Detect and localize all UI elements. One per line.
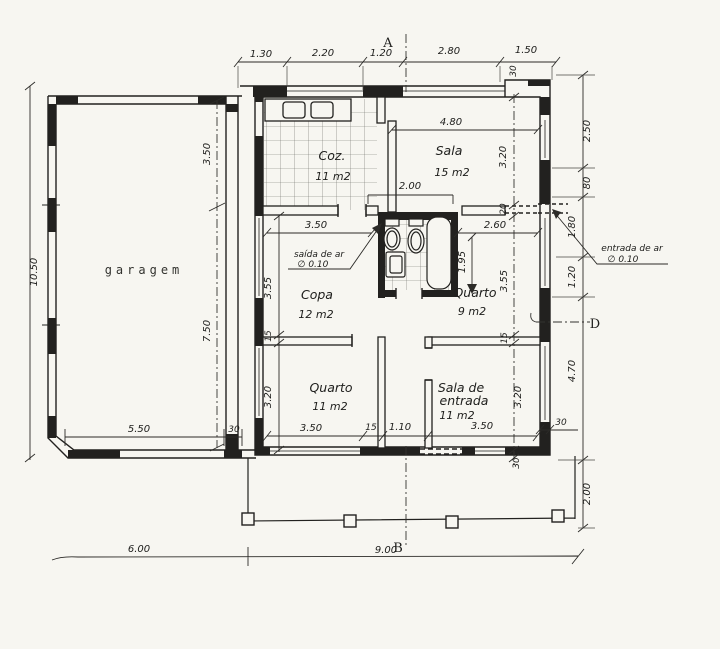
dim-right-1: 2.50 bbox=[582, 120, 593, 142]
room-area-kitchen: 11 m2 bbox=[315, 170, 350, 183]
dim-right-wall: 30 bbox=[555, 418, 567, 428]
kitchen-sink-right bbox=[311, 102, 333, 118]
dim-right-inner-6: 30 bbox=[512, 457, 522, 469]
dim-top-5: 1.50 bbox=[515, 45, 537, 56]
tiled-floors bbox=[264, 99, 451, 290]
dim-right-4: 1.20 bbox=[567, 266, 578, 288]
kitchen-sink-left bbox=[283, 102, 305, 118]
air-inlet-size: ∅ 0.10 bbox=[608, 255, 639, 265]
dim-left-inner-2: 15 bbox=[264, 330, 274, 342]
room-area-entry: 11 m2 bbox=[439, 409, 474, 422]
dim-left-inner-1: 3.55 bbox=[263, 277, 274, 299]
dining-top-wall-jamb bbox=[366, 206, 378, 215]
floor-plan-canvas: garagem Coz. 11 m2 Sala 15 m2 Copa 12 m2… bbox=[0, 0, 720, 649]
dim-garage-w: 5.50 bbox=[128, 424, 150, 435]
dim-dining-w: 3.50 bbox=[305, 220, 327, 231]
garage-width-dim bbox=[65, 429, 242, 446]
dim-bottom-wall: 15 bbox=[365, 423, 377, 433]
dim-left-total: 10.50 bbox=[29, 258, 40, 287]
dim-right-inner-4: 15 bbox=[500, 332, 510, 344]
dim-top-2: 2.20 bbox=[312, 48, 334, 59]
section-d-hook bbox=[531, 313, 536, 322]
dim-top-4: 2.80 bbox=[438, 46, 460, 57]
porch-column bbox=[242, 513, 254, 525]
corridor-left-wall bbox=[378, 337, 385, 448]
room-area-living: 15 m2 bbox=[434, 166, 469, 179]
porch bbox=[242, 456, 575, 528]
porch-column bbox=[446, 516, 458, 528]
room-area-bedroom-small: 9 m2 bbox=[458, 305, 486, 318]
room-label-dining: Copa bbox=[301, 287, 333, 302]
garage-wall-lines bbox=[48, 96, 256, 458]
room-label-bedroom-large: Quarto bbox=[309, 380, 352, 395]
dim-top-1: 1.30 bbox=[250, 49, 272, 60]
porch-edges bbox=[248, 456, 575, 521]
bath-sink-inner bbox=[390, 256, 402, 273]
kitchen-fixtures bbox=[265, 99, 351, 121]
dim-garage-v1: 3.50 bbox=[202, 143, 213, 165]
bathtub-icon bbox=[427, 217, 451, 289]
air-inlet-arrow bbox=[552, 209, 561, 219]
dim-garage-wall: 30 bbox=[228, 425, 240, 435]
dim-top-wall: 30 bbox=[509, 65, 519, 77]
dim-right-inner-2: 20 bbox=[499, 203, 509, 215]
section-marker-d: D bbox=[590, 317, 600, 332]
toilet-bowl-inner bbox=[387, 231, 397, 247]
dim-right-2: 80 bbox=[582, 177, 593, 190]
dim-garage-v2: 7.50 bbox=[202, 320, 213, 342]
dim-bottom-corridor: 1.10 bbox=[389, 422, 411, 433]
dim-top-3: 1.20 bbox=[370, 48, 392, 59]
blueprint-page: garagem Coz. 11 m2 Sala 15 m2 Copa 12 m2… bbox=[0, 0, 720, 649]
dim-right-5: 4.70 bbox=[567, 360, 578, 382]
room-label-living: Sala bbox=[436, 143, 463, 158]
corridor-right-wall-upper bbox=[425, 337, 432, 348]
garage-structure bbox=[42, 96, 256, 458]
dim-bedroom-small-w: 2.60 bbox=[484, 220, 506, 231]
dim-site-right: 9.00 bbox=[375, 545, 397, 556]
dim-site-left: 6.00 bbox=[128, 544, 150, 555]
room-label-garage: garagem bbox=[105, 263, 184, 277]
dim-left-inner-3: 3.20 bbox=[263, 386, 274, 408]
living-left-wall bbox=[388, 121, 396, 212]
annotation-labels: saída de ar ∅ 0.10 entrada de ar ∅ 0.10 bbox=[294, 244, 664, 270]
living-opening-dim bbox=[368, 195, 453, 204]
dim-right-3: 1.80 bbox=[567, 216, 578, 238]
toilet-tank bbox=[385, 219, 399, 226]
dim-right-inner-5: 3.20 bbox=[513, 386, 524, 408]
dim-living-w: 4.80 bbox=[440, 117, 462, 128]
air-inlet-label: entrada de ar bbox=[601, 244, 664, 254]
room-label-kitchen: Coz. bbox=[319, 148, 346, 163]
bath-length-dim bbox=[468, 233, 476, 292]
bidet-tank bbox=[409, 219, 423, 226]
porch-column bbox=[552, 510, 564, 522]
bidet-inner bbox=[411, 232, 421, 250]
room-area-dining: 12 m2 bbox=[298, 308, 333, 321]
dim-right-inner-3: 3.55 bbox=[499, 270, 510, 292]
dim-bath-length: 1.95 bbox=[457, 251, 468, 273]
room-area-bedroom-large: 11 m2 bbox=[312, 400, 347, 413]
porch-column bbox=[344, 515, 356, 527]
dim-bottom-w1: 3.50 bbox=[300, 423, 322, 434]
dim-right-6: 2.00 bbox=[582, 483, 593, 505]
dim-bottom-w2: 3.50 bbox=[471, 421, 493, 432]
air-outlet-label: saída de ar bbox=[294, 250, 345, 260]
dining-top-wall bbox=[263, 206, 338, 215]
dim-living-opening: 2.00 bbox=[399, 181, 421, 192]
mid-wall-left bbox=[263, 337, 352, 345]
mid-wall-right bbox=[428, 337, 540, 345]
dim-right-inner-1: 3.20 bbox=[498, 146, 509, 168]
air-outlet-size: ∅ 0.10 bbox=[298, 260, 329, 270]
kitchen-right-wall bbox=[377, 97, 385, 123]
kitchen-counter bbox=[265, 99, 351, 121]
entrance-door-dashes bbox=[420, 449, 462, 454]
room-label-entry-2: entrada bbox=[440, 393, 489, 408]
room-label-bedroom-small: Quarto bbox=[453, 285, 496, 300]
living-width-dim bbox=[388, 125, 542, 134]
